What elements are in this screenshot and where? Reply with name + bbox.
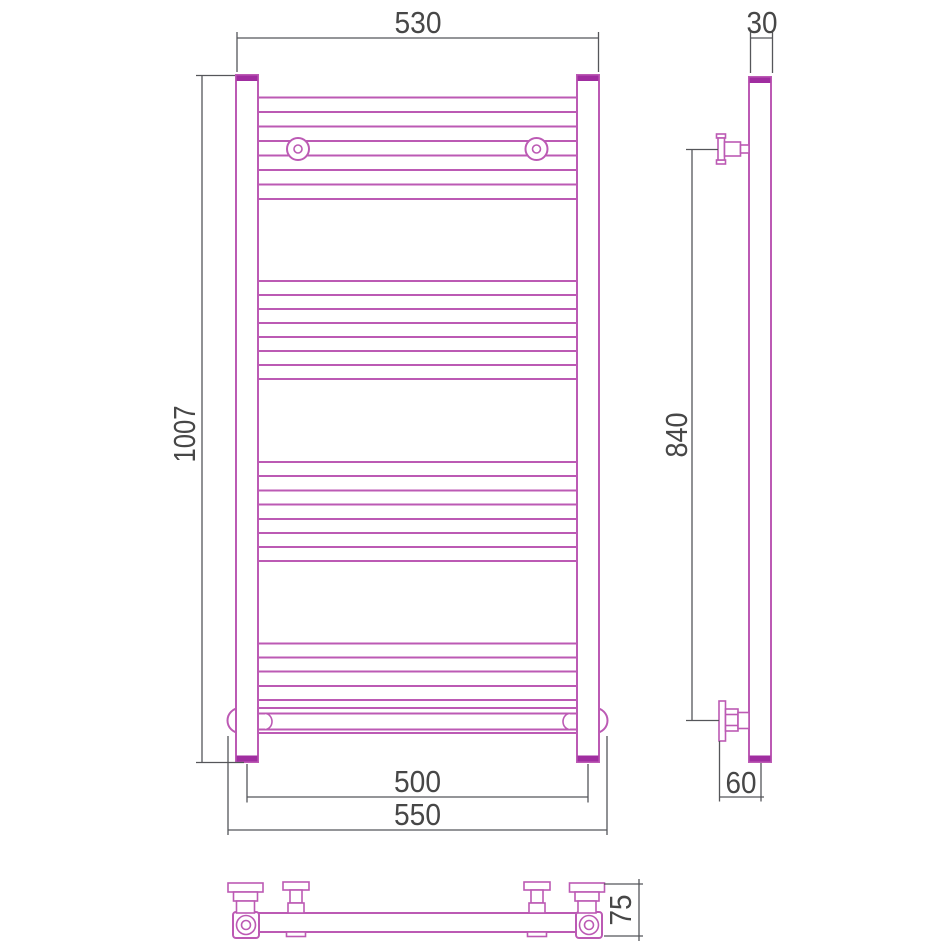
bracket-wall-flange bbox=[718, 138, 725, 160]
dimension-1007: 1007 bbox=[167, 75, 244, 763]
side-tube bbox=[749, 77, 771, 762]
front-view bbox=[228, 75, 608, 762]
dimension-75: 75 bbox=[603, 879, 643, 941]
right-bracket-foot bbox=[529, 903, 545, 913]
right-upright-tube bbox=[577, 75, 599, 762]
dim-label-500: 500 bbox=[394, 764, 441, 799]
side-view bbox=[717, 77, 772, 762]
dim-label-1007: 1007 bbox=[167, 406, 202, 463]
right-mount-bracket bbox=[526, 138, 548, 160]
right-bracket-cap bbox=[524, 882, 550, 890]
right-valve-flange-cap bbox=[570, 883, 605, 892]
side-top-wall-bracket bbox=[717, 134, 750, 164]
left-valve-mid-block bbox=[234, 892, 258, 901]
drawing-canvas: 530 1007 500 550 bbox=[0, 0, 950, 950]
left-bracket-cap bbox=[283, 882, 309, 890]
dim-label-60: 60 bbox=[726, 765, 757, 800]
left-bracket-tab bbox=[287, 932, 306, 937]
right-valve-stem bbox=[578, 901, 596, 913]
side-tube-top-cap bbox=[750, 78, 771, 84]
bottom-view-tube bbox=[258, 913, 577, 932]
valve-neck bbox=[738, 713, 749, 729]
valve-hex-body bbox=[726, 709, 739, 731]
right-valve-inner-circle bbox=[585, 921, 594, 930]
dim-label-75: 75 bbox=[603, 895, 638, 926]
left-valve-inner-circle bbox=[242, 921, 251, 930]
bracket-neck bbox=[741, 145, 750, 153]
left-valve-flange-cap bbox=[228, 883, 263, 892]
dimension-840: 840 bbox=[659, 149, 719, 721]
dim-label-550: 550 bbox=[394, 797, 441, 832]
right-mount-bracket-inner-ring bbox=[533, 145, 541, 153]
right-upright-top-cap bbox=[578, 76, 599, 82]
bracket-body bbox=[725, 142, 741, 156]
left-bracket-foot bbox=[288, 903, 304, 913]
right-bracket-tab bbox=[528, 932, 547, 937]
dim-label-530: 530 bbox=[395, 5, 442, 40]
towel-rail-rungs bbox=[258, 98, 577, 701]
dimension-30: 30 bbox=[747, 5, 778, 73]
left-bracket-stem bbox=[290, 890, 302, 903]
right-bracket-stem bbox=[531, 890, 543, 903]
collector-left-end-arc bbox=[265, 714, 272, 730]
left-valve-stem bbox=[237, 901, 255, 913]
dim-label-840: 840 bbox=[659, 413, 694, 458]
dim-label-30: 30 bbox=[747, 5, 778, 40]
left-mount-bracket-inner-ring bbox=[294, 145, 302, 153]
left-upright-bottom-cap bbox=[237, 756, 258, 762]
dimension-530: 530 bbox=[237, 5, 599, 72]
bottom-left-valve bbox=[228, 883, 263, 938]
collector-right-end-arc bbox=[563, 714, 570, 730]
left-mount-bracket bbox=[287, 138, 309, 160]
bottom-view: 75 bbox=[228, 879, 643, 941]
right-upright-bottom-cap bbox=[578, 756, 599, 762]
side-tube-bottom-cap bbox=[750, 756, 771, 762]
left-upright-tube bbox=[236, 75, 258, 762]
side-bottom-valve bbox=[719, 701, 749, 741]
valve-wall-flange bbox=[719, 701, 726, 741]
left-upright-top-cap bbox=[237, 76, 258, 82]
technical-drawing: 530 1007 500 550 bbox=[0, 0, 950, 950]
right-valve-mid-block bbox=[575, 892, 599, 901]
